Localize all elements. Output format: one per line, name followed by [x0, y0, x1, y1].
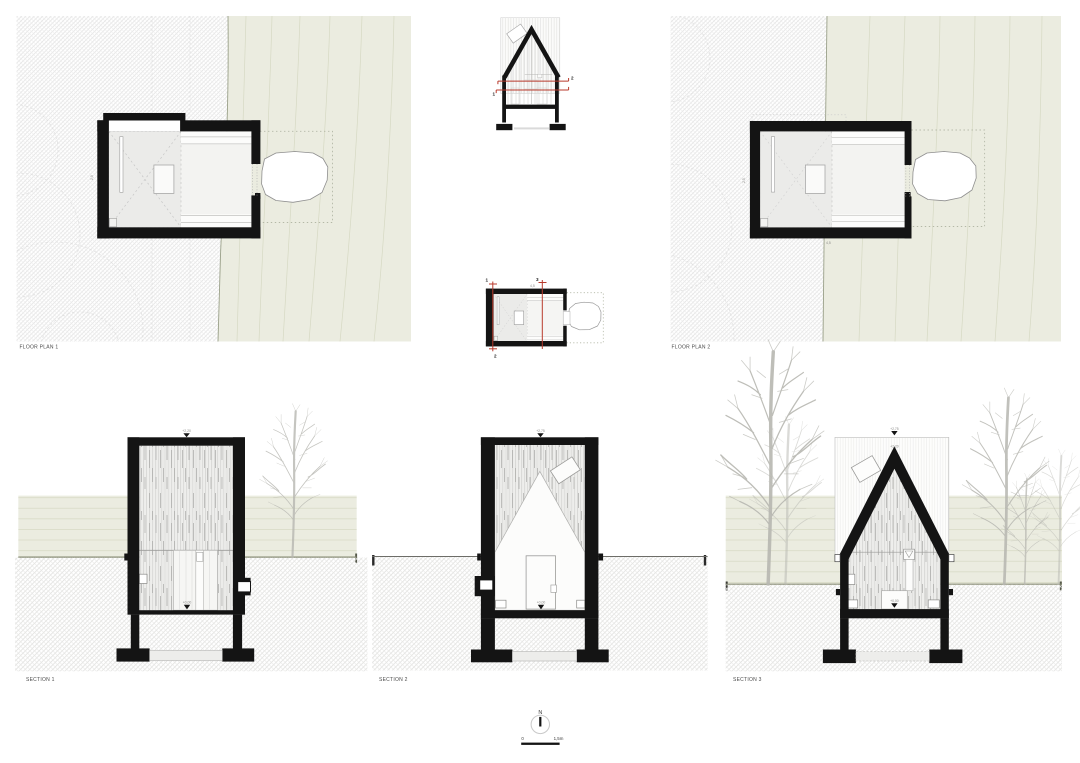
svg-text:2: 2	[494, 354, 497, 359]
svg-text:+2,20: +2,20	[890, 445, 899, 449]
svg-text:0: 0	[521, 736, 524, 741]
svg-text:+2,75: +2,75	[536, 429, 545, 433]
svg-text:4,5: 4,5	[530, 284, 535, 288]
svg-text:SECTION 2: SECTION 2	[379, 677, 408, 683]
svg-text:FLOOR PLAN 2: FLOOR PLAN 2	[672, 345, 711, 351]
svg-text:+0,00: +0,00	[537, 600, 546, 604]
svg-text:+2,20: +2,20	[182, 429, 191, 433]
svg-text:3: 3	[536, 277, 539, 282]
svg-text:N: N	[538, 710, 542, 716]
svg-text:+2,75: +2,75	[890, 427, 899, 431]
svg-text:SECTION 3: SECTION 3	[733, 677, 762, 683]
svg-text:FLOOR PLAN 1: FLOOR PLAN 1	[20, 345, 59, 351]
svg-text:+0,00: +0,00	[183, 600, 192, 604]
svg-text:2,5: 2,5	[742, 178, 746, 183]
svg-text:1: 1	[486, 278, 489, 283]
svg-text:SECTION 1: SECTION 1	[26, 677, 55, 683]
svg-text:1: 1	[493, 92, 496, 97]
svg-text:+0,00: +0,00	[890, 599, 899, 603]
svg-text:1,5m: 1,5m	[554, 736, 564, 741]
svg-text:2,5: 2,5	[90, 175, 94, 180]
svg-text:2: 2	[571, 75, 574, 80]
svg-text:4,5: 4,5	[826, 241, 831, 245]
